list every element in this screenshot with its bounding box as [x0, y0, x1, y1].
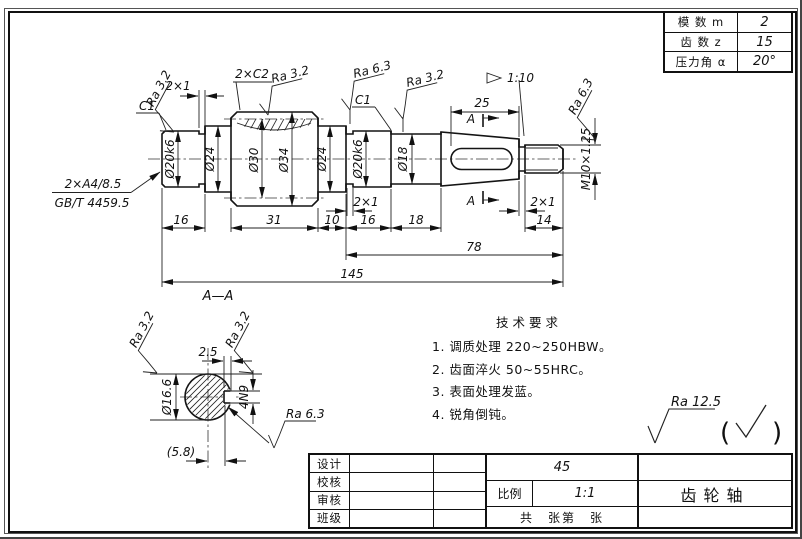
section-view: A—A — [118, 289, 324, 470]
signature-date-cell — [434, 510, 485, 527]
roughness-symbol-section-keyway: Ra 6.3 — [269, 407, 325, 448]
title-block: 设计 校核 审核 班级 45 比例 — [308, 453, 793, 529]
param-label: 模 数 m — [665, 13, 738, 32]
tech-requirements: 技术要求 1. 调质处理 220~250HBW。 2. 齿面淬火 50~55HR… — [432, 312, 682, 426]
dim-10: 10 — [324, 213, 340, 227]
tech-requirement-item: 2. 齿面淬火 50~55HRC。 — [432, 359, 682, 382]
sheet-info: 共 张第 张 — [487, 507, 637, 527]
signature-row: 校核 — [310, 473, 485, 491]
roughness-label: Ra 6.3 — [286, 407, 325, 421]
dim-thread: M10×1.25 — [579, 128, 593, 190]
signature-label: 校核 — [310, 473, 350, 490]
scale-value: 1:1 — [533, 481, 637, 506]
param-row-teeth: 齿 数 z 15 — [665, 33, 791, 53]
tech-requirement-item: 4. 锐角倒钝。 — [432, 404, 682, 427]
signature-date-cell — [434, 492, 485, 509]
check-icon — [736, 405, 766, 437]
title-block-middle: 45 比例 1:1 共 张第 张 — [485, 455, 637, 527]
tech-requirement-item: 1. 调质处理 220~250HBW。 — [432, 336, 682, 359]
dim-14: 14 — [536, 213, 551, 227]
chamfer-callouts: C1 C1 2×C2 — [136, 67, 391, 130]
signature-name-cell — [350, 473, 434, 490]
dim-dia34: Ø34 — [277, 148, 291, 174]
tech-requirement-item: 3. 表面处理发蓝。 — [432, 381, 682, 404]
param-value: 2 — [738, 13, 791, 32]
param-row-module: 模 数 m 2 — [665, 13, 791, 33]
section-title: A—A — [202, 289, 234, 304]
paren-open: ( — [720, 418, 730, 448]
dim-dia20-b: Ø20k6 — [351, 139, 365, 180]
param-value: 20° — [738, 52, 791, 71]
section-ref-dim: (5.8) — [167, 445, 195, 459]
signature-name-cell — [350, 455, 434, 472]
section-key-depth: 2.5 — [198, 345, 217, 359]
param-row-pressure-angle: 压力角 α 20° — [665, 52, 791, 71]
scale-row: 比例 1:1 — [487, 481, 637, 507]
dim-groove-b: 2×1 — [353, 195, 378, 209]
material-cell: 45 — [487, 455, 637, 481]
roughness-label: Ra 3.2 — [126, 309, 156, 350]
center-hole-note: 2×A4/8.5 GB/T 4459.5 — [52, 172, 160, 210]
empty-cell — [639, 455, 791, 481]
dim-16a: 16 — [173, 213, 189, 227]
dim-dia18: Ø18 — [396, 146, 410, 172]
dim-25: 25 — [474, 96, 489, 110]
dim-78: 78 — [466, 240, 482, 254]
dim-16b: 16 — [360, 213, 376, 227]
center-hole-standard: GB/T 4459.5 — [55, 196, 130, 210]
taper-icon — [487, 73, 501, 83]
dim-dia24-b: Ø24 — [315, 147, 329, 173]
title-block-right: 齿轮轴 — [637, 455, 791, 527]
cut-label-top: A — [466, 112, 475, 126]
signature-row: 审核 — [310, 492, 485, 510]
signature-label: 审核 — [310, 492, 350, 509]
taper-callout: 1:10 — [487, 71, 534, 136]
center-hole-spec: 2×A4/8.5 — [65, 177, 122, 191]
chamfer-c1-mid: C1 — [355, 93, 371, 107]
dim-dia30: Ø30 — [247, 147, 261, 173]
scale-label: 比例 — [487, 481, 533, 506]
gear-hatch — [238, 117, 313, 139]
roughness-label: Ra 3.2 — [405, 67, 446, 90]
gear-param-table: 模 数 m 2 齿 数 z 15 压力角 α 20° — [663, 11, 793, 73]
extension-lines — [162, 90, 601, 287]
roughness-label: Ra 3.2 — [270, 63, 311, 86]
param-label: 压力角 α — [665, 52, 738, 71]
signature-date-cell — [434, 473, 485, 490]
roughness-label: Ra 6.3 — [565, 76, 595, 117]
signature-name-cell — [350, 510, 434, 527]
title-block-signatures: 设计 校核 审核 班级 — [310, 455, 485, 527]
drawing-sheet: 16 31 10 16 18 14 78 145 25 2×1 2×1 2×1 … — [0, 0, 802, 539]
section-cut-marks: A A — [466, 112, 499, 208]
chamfer-2xc2: 2×C2 — [235, 67, 269, 81]
signature-row: 设计 — [310, 455, 485, 473]
main-shaft-view: 16 31 10 16 18 14 78 145 25 2×1 2×1 2×1 … — [52, 58, 620, 287]
empty-cell — [639, 507, 791, 527]
roughness-label: Ra 6.3 — [352, 58, 393, 81]
dim-145: 145 — [341, 267, 364, 281]
roughness-label: Ra 3.2 — [222, 309, 252, 350]
roughness-symbol-journal-right: Ra 3.2 — [388, 67, 452, 120]
length-dims — [162, 96, 595, 282]
signature-name-cell — [350, 492, 434, 509]
section-dia: Ø16.6 — [160, 379, 174, 417]
roughness-symbol-section-left: Ra 3.2 — [118, 309, 181, 378]
signature-date-cell — [434, 455, 485, 472]
dim-18: 18 — [408, 213, 424, 227]
param-value: 15 — [738, 33, 791, 52]
param-label: 齿 数 z — [665, 33, 738, 52]
part-name: 齿轮轴 — [639, 481, 791, 507]
dim-31: 31 — [266, 213, 281, 227]
dim-groove-c: 2×1 — [530, 195, 555, 209]
section-key-width: 4N9 — [237, 385, 251, 409]
dim-dia20-a: Ø20k6 — [163, 139, 177, 180]
dim-dia24-a: Ø24 — [203, 147, 217, 173]
tech-requirements-title: 技术要求 — [496, 312, 682, 331]
signature-label: 设计 — [310, 455, 350, 472]
signature-label: 班级 — [310, 510, 350, 527]
paren-close: ) — [772, 418, 782, 448]
cut-label-bottom: A — [466, 194, 475, 208]
taper-label: 1:10 — [507, 71, 534, 85]
signature-row: 班级 — [310, 510, 485, 527]
